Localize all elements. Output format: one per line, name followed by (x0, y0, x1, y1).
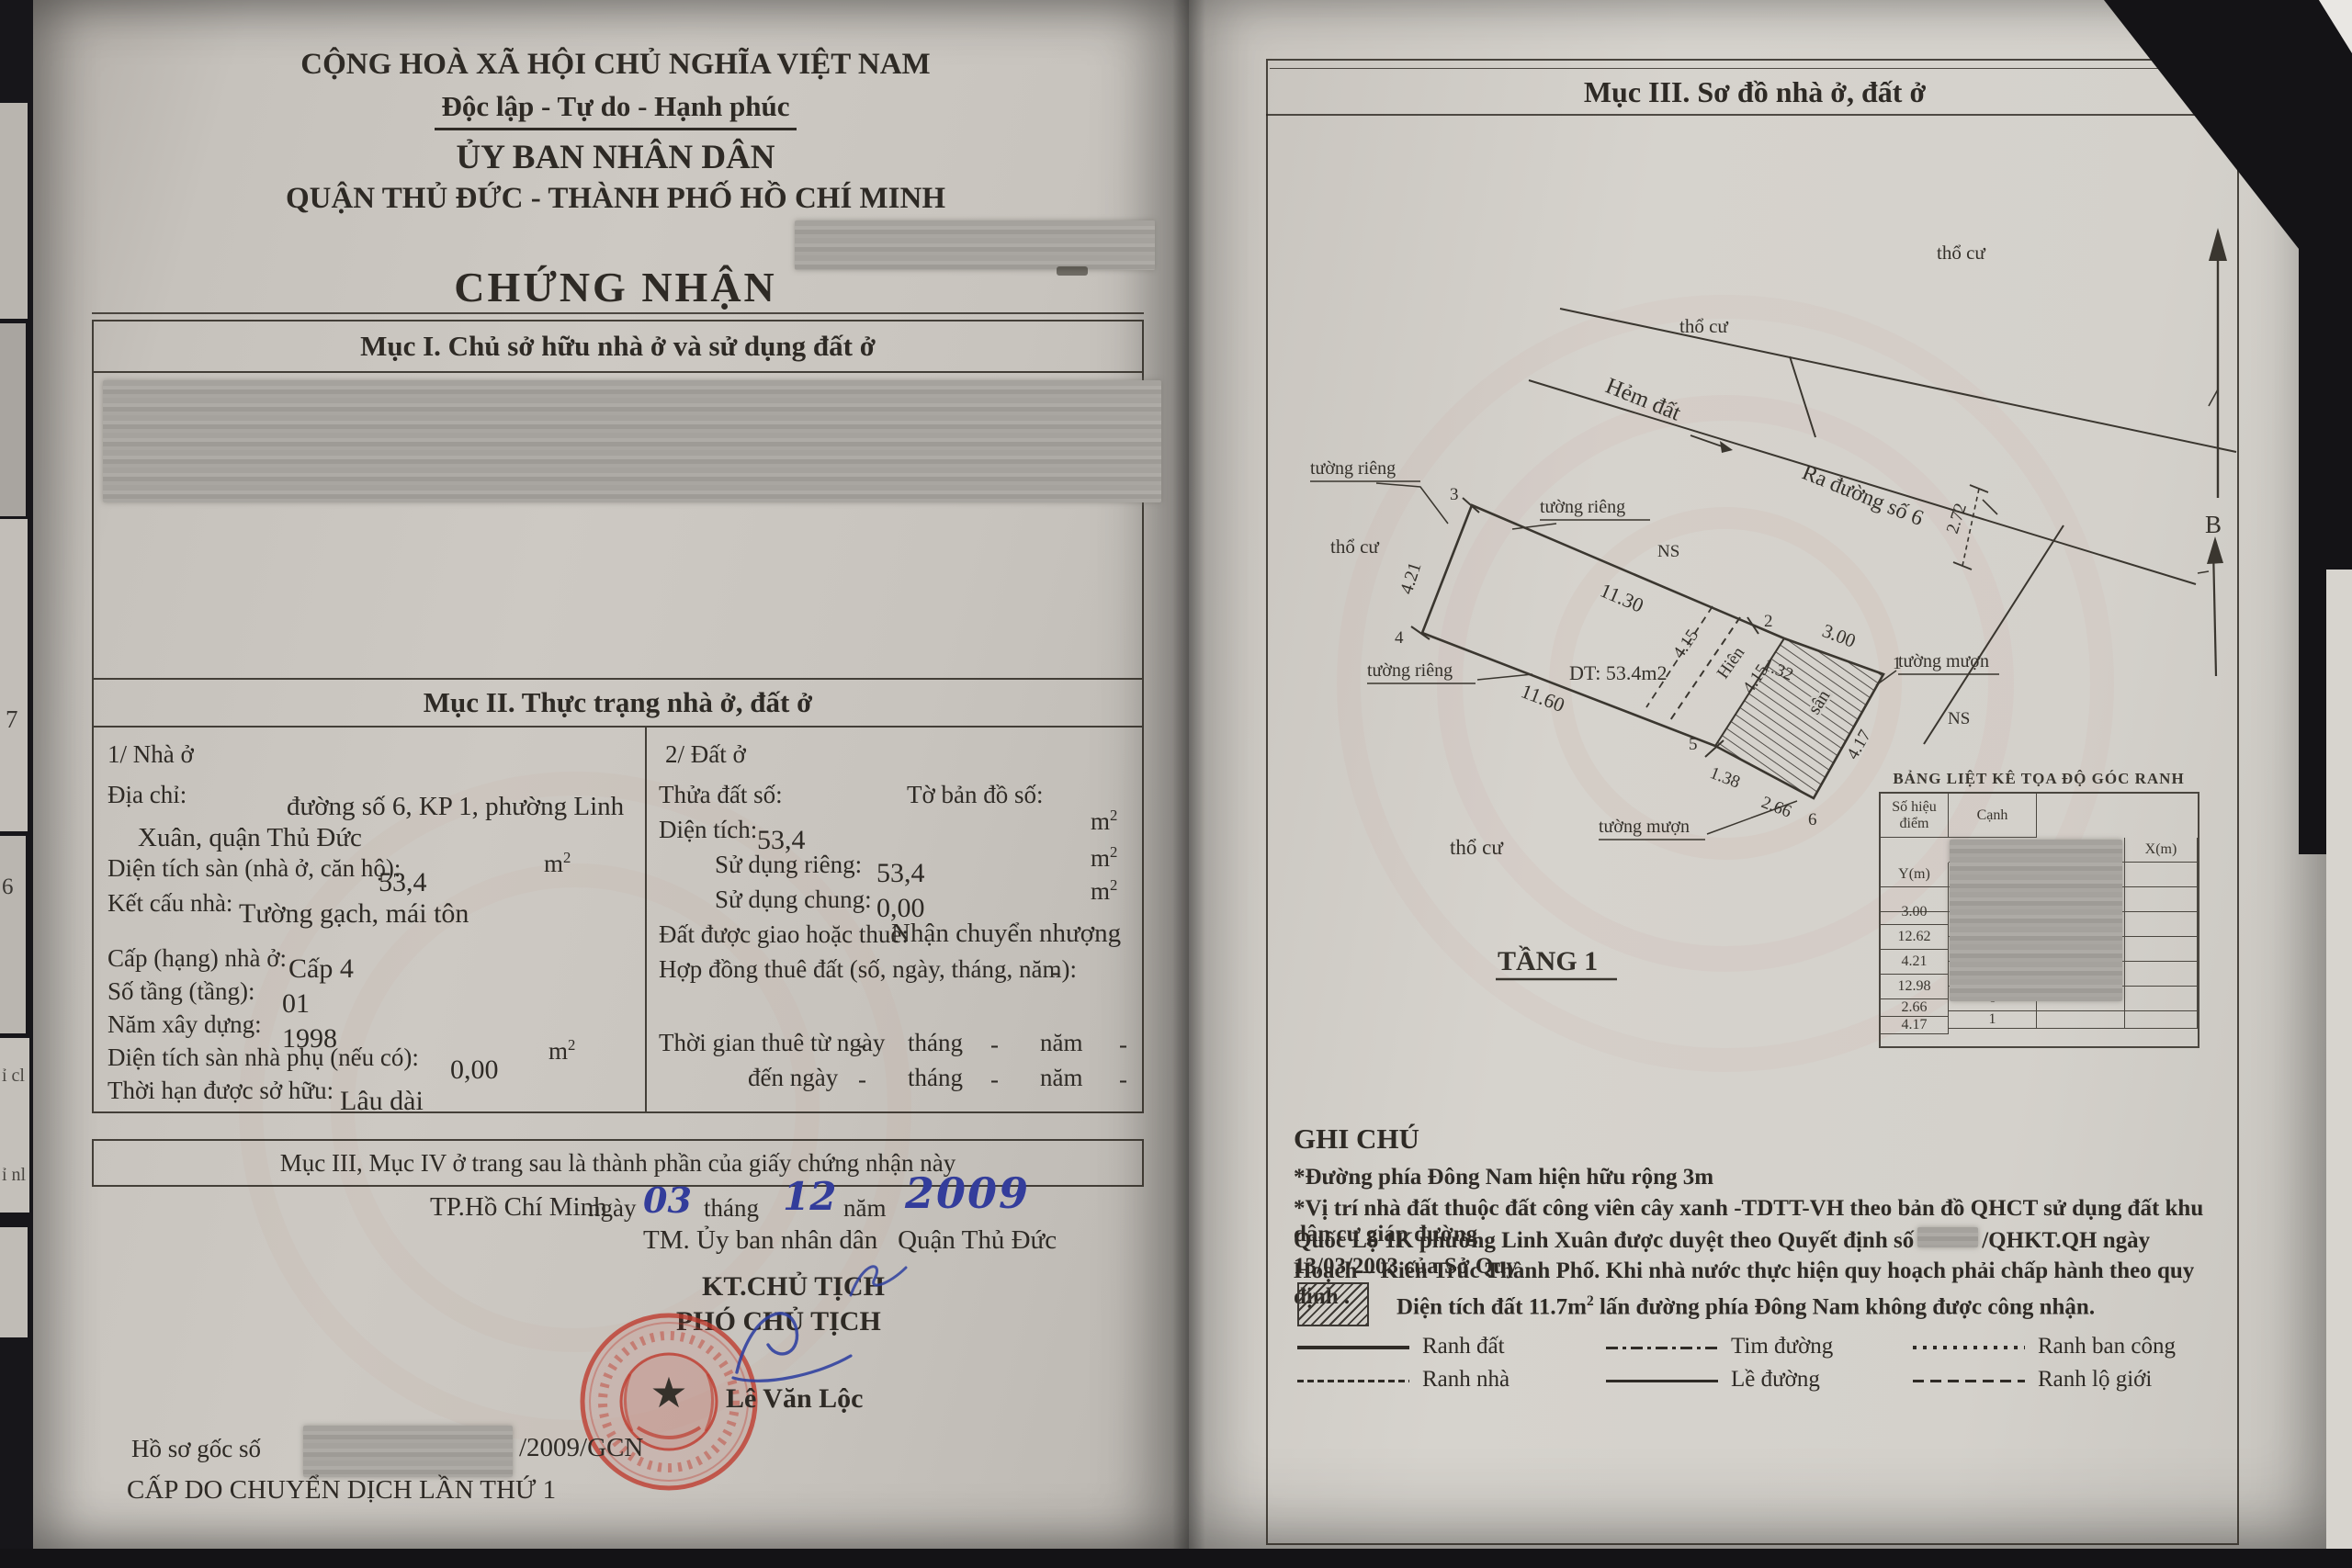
adjacent-page-fragment (0, 103, 28, 319)
point-label: 2 (1764, 612, 1773, 631)
redacted-owner-block (103, 380, 1161, 502)
assignment-value: Nhận chuyển nhượng (891, 919, 1121, 949)
land-area-label: Diện tích: (659, 816, 757, 844)
issue-nam: năm (843, 1194, 887, 1223)
plan-title: Mục III. Sơ đồ nhà ở, đất ở (1332, 75, 2177, 109)
wall-own-label: tường riêng (1367, 660, 1453, 681)
line-sample-dash (1913, 1380, 2025, 1382)
floors-value: 01 (282, 988, 310, 1020)
point-label: 1 (1893, 654, 1902, 673)
legend-ranh-nha: Ranh nhà (1297, 1367, 1510, 1393)
national-motto-line1: CỘNG HOÀ XÃ HỘI CHỦ NGHĨA VIỆT NAM (220, 48, 1011, 82)
cell-edge: 4.21 (1881, 950, 1949, 975)
margin-digit: 7 (6, 705, 18, 734)
floor-area-unit: m2 (544, 849, 571, 878)
tho-cu-label: thổ cư (1679, 315, 1728, 337)
adjacent-page-fragment (0, 836, 26, 1033)
dash: - (990, 1031, 999, 1059)
lease-to-label: đến ngày (748, 1064, 838, 1092)
structure-value: Tường gạch, mái tôn (239, 898, 469, 930)
issuance-type-line: CẤP DO CHUYỂN DỊCH LẦN THỨ 1 (127, 1475, 556, 1506)
dash: - (858, 1066, 866, 1094)
cell-y (2125, 1011, 2198, 1029)
cell-x (2037, 1011, 2125, 1029)
rule-line (1270, 68, 2235, 69)
shared-use-unit: m2 (1091, 876, 1117, 906)
adjacent-page-fragment (0, 323, 26, 516)
private-use-unit: m2 (1091, 843, 1117, 873)
house-heading: 1/ Nhà ở (107, 740, 194, 769)
private-use-label: Sử dụng riêng: (715, 851, 862, 879)
hatch-legend-swatch (1297, 1282, 1369, 1326)
photo-edge-bottom (0, 1549, 2352, 1568)
issue-day-handwritten: 03 (643, 1179, 692, 1221)
cell-point: 1 (1949, 1011, 2037, 1029)
north-label: B (2205, 511, 2222, 538)
year-label: Năm xây dựng: (107, 1010, 262, 1039)
pen-flick-ink (845, 1255, 919, 1306)
document-photo: CỘNG HOÀ XÃ HỘI CHỦ NGHĨA VIỆT NAM Độc l… (0, 0, 2352, 1568)
page-fold-shadow (1172, 0, 1205, 1549)
wall-borrowed-label: tường mượn (1599, 817, 1690, 837)
lease-label: Hợp đồng thuê đất (số, ngày, tháng, năm)… (659, 955, 1077, 984)
margin-text: ỉ nl (2, 1165, 26, 1186)
rule-line (92, 312, 1144, 314)
aux-area-value: 0,00 (450, 1055, 499, 1086)
tenure-value: Lâu dài (340, 1086, 424, 1117)
dash: - (858, 1031, 866, 1059)
shared-use-label: Sử dụng chung: (715, 886, 872, 914)
tenure-label: Thời hạn được sở hữu: (107, 1077, 334, 1105)
section1-title: Mục I. Chủ sở hữu nhà ở và sử dụng đất ở (94, 321, 1142, 371)
section2-title: Mục II. Thực trạng nhà ở, đất ở (94, 680, 1142, 726)
dash: - (990, 1066, 999, 1094)
dim-label: 2.66 (1758, 793, 1794, 822)
col-header-point: Số hiệuđiểm (1881, 794, 1949, 838)
legend-le-duong: Lề đường (1606, 1367, 1820, 1393)
point-label: 6 (1808, 810, 1817, 829)
ink-smudge (1057, 266, 1088, 276)
cell-edge: 12.98 (1881, 975, 1949, 999)
cell-y (2125, 937, 2198, 962)
cell-y (2125, 987, 2198, 1011)
tho-cu-label: thổ cư (1450, 836, 1504, 859)
address-label: Địa chỉ: (107, 781, 187, 809)
point-label: 4 (1395, 628, 1404, 648)
margin-digit: 6 (2, 874, 14, 900)
notes-title: GHI CHÚ (1294, 1122, 1419, 1156)
land-area-unit: m2 (1091, 807, 1117, 836)
wall-own-label: tường riêng (1540, 497, 1625, 517)
section1-title-box: Mục I. Chủ sở hữu nhà ở và sử dụng đất ở (92, 320, 1144, 373)
cell-edge: 4.17 (1881, 1017, 1949, 1034)
section2-body: 1/ Nhà ở Địa chỉ: đường số 6, KP 1, phườ… (92, 728, 1144, 1113)
dim-label: 4.15 (1669, 626, 1702, 662)
dim-label: 3.00 (1819, 619, 1859, 652)
point-label: 5 (1689, 735, 1698, 754)
dash: - (1119, 1031, 1127, 1059)
issue-ngay: ngày (588, 1194, 636, 1223)
issue-month-handwritten: 12 (783, 1174, 836, 1219)
cell-y (2125, 962, 2198, 987)
line-sample-solid-thin (1606, 1380, 1718, 1382)
floors-label: Số tầng (tầng): (107, 977, 254, 1006)
page-edge-sliver (2326, 570, 2352, 1549)
issuing-district: QUẬN THỦ ĐỨC - THÀNH PHỐ HỒ CHÍ MINH (184, 182, 1047, 216)
address-value-1: đường số 6, KP 1, phường Linh (287, 792, 624, 822)
structure-label: Kết cấu nhà: (107, 889, 232, 918)
tm-line: TM. Ủy ban nhân dân Quận Thủ Đức (643, 1225, 1057, 1256)
map-label: Tờ bản đồ số: (907, 781, 1044, 809)
dim-label: 11.30 (1597, 579, 1647, 617)
col-header-edge: Cạnh (1949, 794, 2037, 838)
coords-table-title: BẢNG LIỆT KÊ TỌA ĐỘ GÓC RANH (1879, 770, 2199, 788)
legend-ranh-dat: Ranh đất (1297, 1334, 1505, 1359)
adjacent-page-fragment (0, 1038, 29, 1213)
line-sample-dotted (1913, 1346, 2025, 1349)
nam-label: năm (1040, 1064, 1083, 1092)
aux-area-unit: m2 (548, 1036, 575, 1066)
star-icon: ★ (650, 1370, 687, 1416)
legend-ranh-ban-cong: Ranh ban công (1913, 1334, 2176, 1359)
cell-edge: 3.00 (1881, 900, 1949, 925)
grade-label: Cấp (hạng) nhà ở: (107, 944, 287, 973)
address-value-2: Xuân, quận Thủ Đức (138, 823, 362, 853)
cell-y (2125, 863, 2198, 887)
private-use-value: 53,4 (876, 858, 925, 889)
margin-text: ỉ cl (2, 1066, 25, 1087)
certificate-title: CHỨNG NHẬN (220, 263, 1011, 311)
lease-from-label: Thời gian thuê từ ngày (659, 1029, 885, 1057)
dim-label: 4.21 (1396, 559, 1426, 596)
assignment-label: Đất được giao hoặc thuê: (659, 920, 909, 949)
ns-label: NS (1657, 542, 1679, 561)
floor-1-label: TẦNG 1 (1498, 945, 1598, 976)
aux-area-label: Diện tích sàn nhà phụ (nếu có): (107, 1043, 419, 1072)
record-number-label: Hồ sơ gốc số (131, 1435, 261, 1463)
line-sample-dashdot (1606, 1347, 1718, 1349)
thang-label: tháng (908, 1064, 963, 1092)
floor-area-value: 53,4 (379, 867, 427, 898)
col-header-y: Y(m) (1881, 863, 1949, 887)
redacted-coordinates (1950, 840, 2122, 1001)
line-sample-solid-thick (1297, 1346, 1409, 1349)
issue-thang: tháng (704, 1194, 759, 1223)
note-line-1: *Đường phía Đông Nam hiện hữu rộng 3m (1294, 1165, 2222, 1190)
cell-y (2125, 887, 2198, 912)
plot-label: Thửa đất số: (659, 781, 783, 809)
national-motto-line2: Độc lập - Tự do - Hạnh phúc (220, 90, 1011, 123)
line-sample-dash-fine (1297, 1380, 1409, 1382)
nam-label: năm (1040, 1029, 1083, 1057)
parcel-area-label: DT: 53.4m2 (1569, 661, 1667, 684)
issuing-authority: ỦY BAN NHÂN DÂN (220, 138, 1011, 177)
col-header-x: X(m) (2125, 838, 2198, 863)
point-label: 3 (1450, 485, 1459, 504)
record-number-value: /2009/GCN (519, 1433, 643, 1463)
hatch-note: Diện tích đất 11.7m2 lấn đường phía Đông… (1396, 1293, 2242, 1320)
porch-label: Hiên (1713, 643, 1749, 682)
wall-own-label: tường riêng (1310, 458, 1396, 479)
thang-label: tháng (908, 1029, 963, 1057)
redacted-record-number (303, 1426, 513, 1477)
floor-area-label: Diện tích sàn (nhà ở, căn hộ): (107, 854, 401, 883)
column-divider (645, 728, 647, 1111)
dim-label: 1.38 (1707, 763, 1743, 793)
lease-value: - (1051, 957, 1060, 987)
legend-tim-duong: Tim đường (1606, 1334, 1833, 1359)
cell-y (2125, 912, 2198, 937)
adjacent-page-fragment (0, 519, 28, 831)
land-heading: 2/ Đất ở (665, 740, 746, 769)
tho-cu-label: thổ cư (1330, 536, 1379, 558)
wall-borrowed-label: tường mượn (1898, 651, 1989, 671)
redacted-decision-number (1917, 1227, 1978, 1247)
section2-title-box: Mục II. Thực trạng nhà ở, đất ở (92, 678, 1144, 728)
legend-ranh-lo-gioi: Ranh lộ giới (1913, 1367, 2152, 1393)
signer-name: Lê Văn Lộc (726, 1383, 863, 1415)
cell-edge: 12.62 (1881, 925, 1949, 950)
cell-edge: 2.66 (1881, 999, 1949, 1017)
grade-value: Cấp 4 (288, 953, 354, 985)
dash: - (1119, 1066, 1127, 1094)
ns-label: NS (1948, 709, 1970, 728)
issue-year-handwritten: 2009 (905, 1168, 1030, 1218)
adjacent-page-fragment (0, 1227, 28, 1337)
tho-cu-label: thổ cư (1937, 242, 1985, 264)
issue-place: TP.Hồ Chí Minh (430, 1192, 607, 1223)
